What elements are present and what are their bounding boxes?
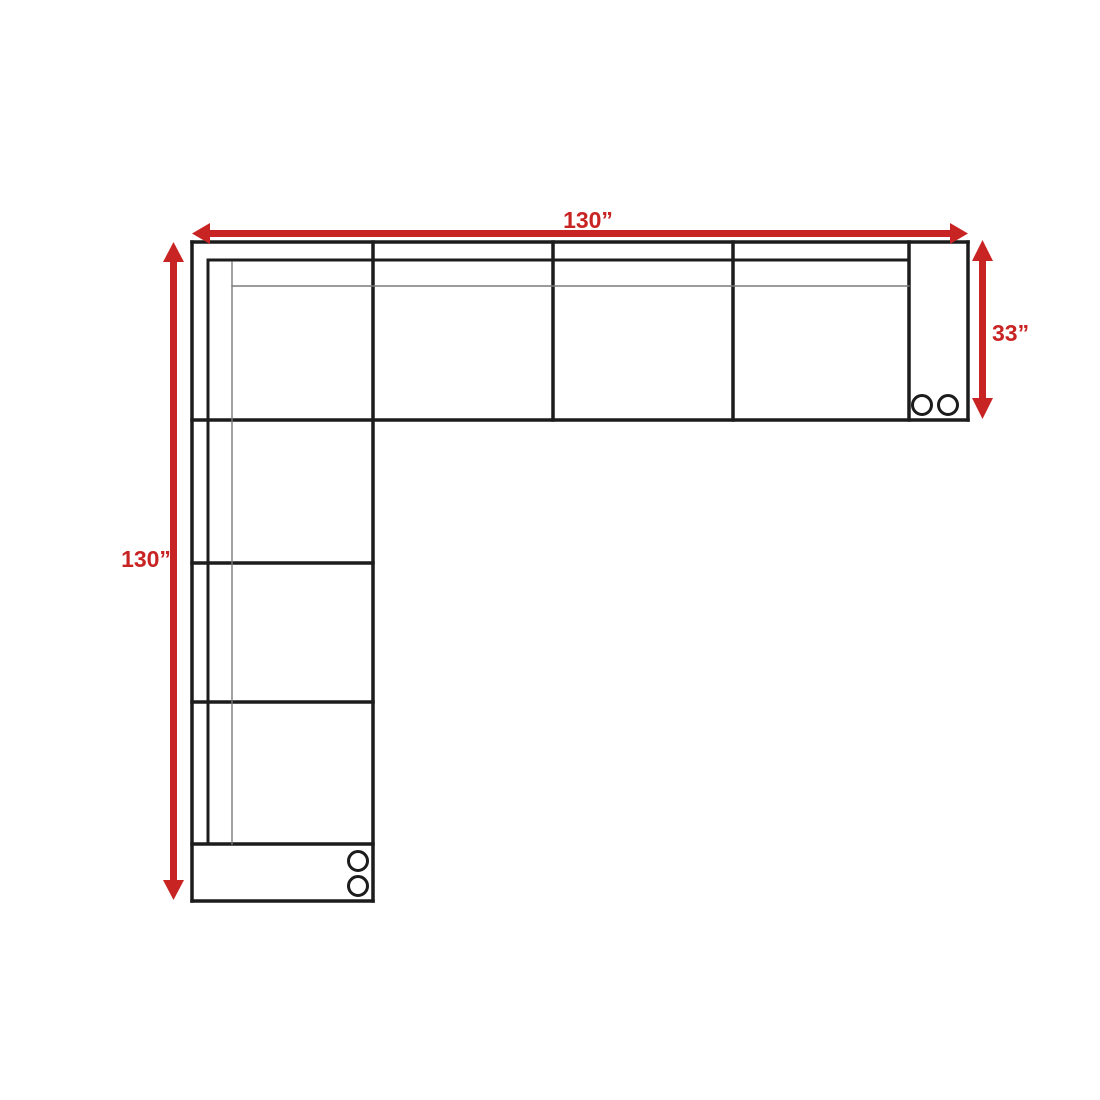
caster-icon	[349, 852, 368, 871]
dimension-arrow-depth-head-top	[972, 240, 993, 261]
caster-icon	[349, 877, 368, 896]
dimension-arrow-height-shaft	[170, 258, 177, 884]
sofa-floorplan-svg: 130” 130” 33”	[0, 0, 1100, 1100]
dimension-label-width: 130”	[563, 207, 613, 233]
caster-icon	[913, 396, 932, 415]
dimension-arrow-depth-head-bottom	[972, 398, 993, 419]
caster-icon	[939, 396, 958, 415]
sofa-frame	[192, 242, 968, 901]
sofa-floorplan-canvas: 130” 130” 33”	[0, 0, 1100, 1100]
dimension-labels: 130” 130” 33”	[121, 207, 1029, 572]
dimension-arrow-depth	[972, 240, 993, 419]
dimension-label-height: 130”	[121, 546, 171, 572]
dimension-arrow-depth-shaft	[979, 256, 986, 404]
casters	[349, 396, 958, 896]
piping-seams	[232, 262, 909, 844]
dimension-arrow-height-head-top	[163, 242, 184, 262]
dimension-label-depth: 33”	[992, 320, 1029, 346]
dimension-arrow-height-head-bottom	[163, 880, 184, 900]
backrest-seams	[208, 260, 909, 844]
